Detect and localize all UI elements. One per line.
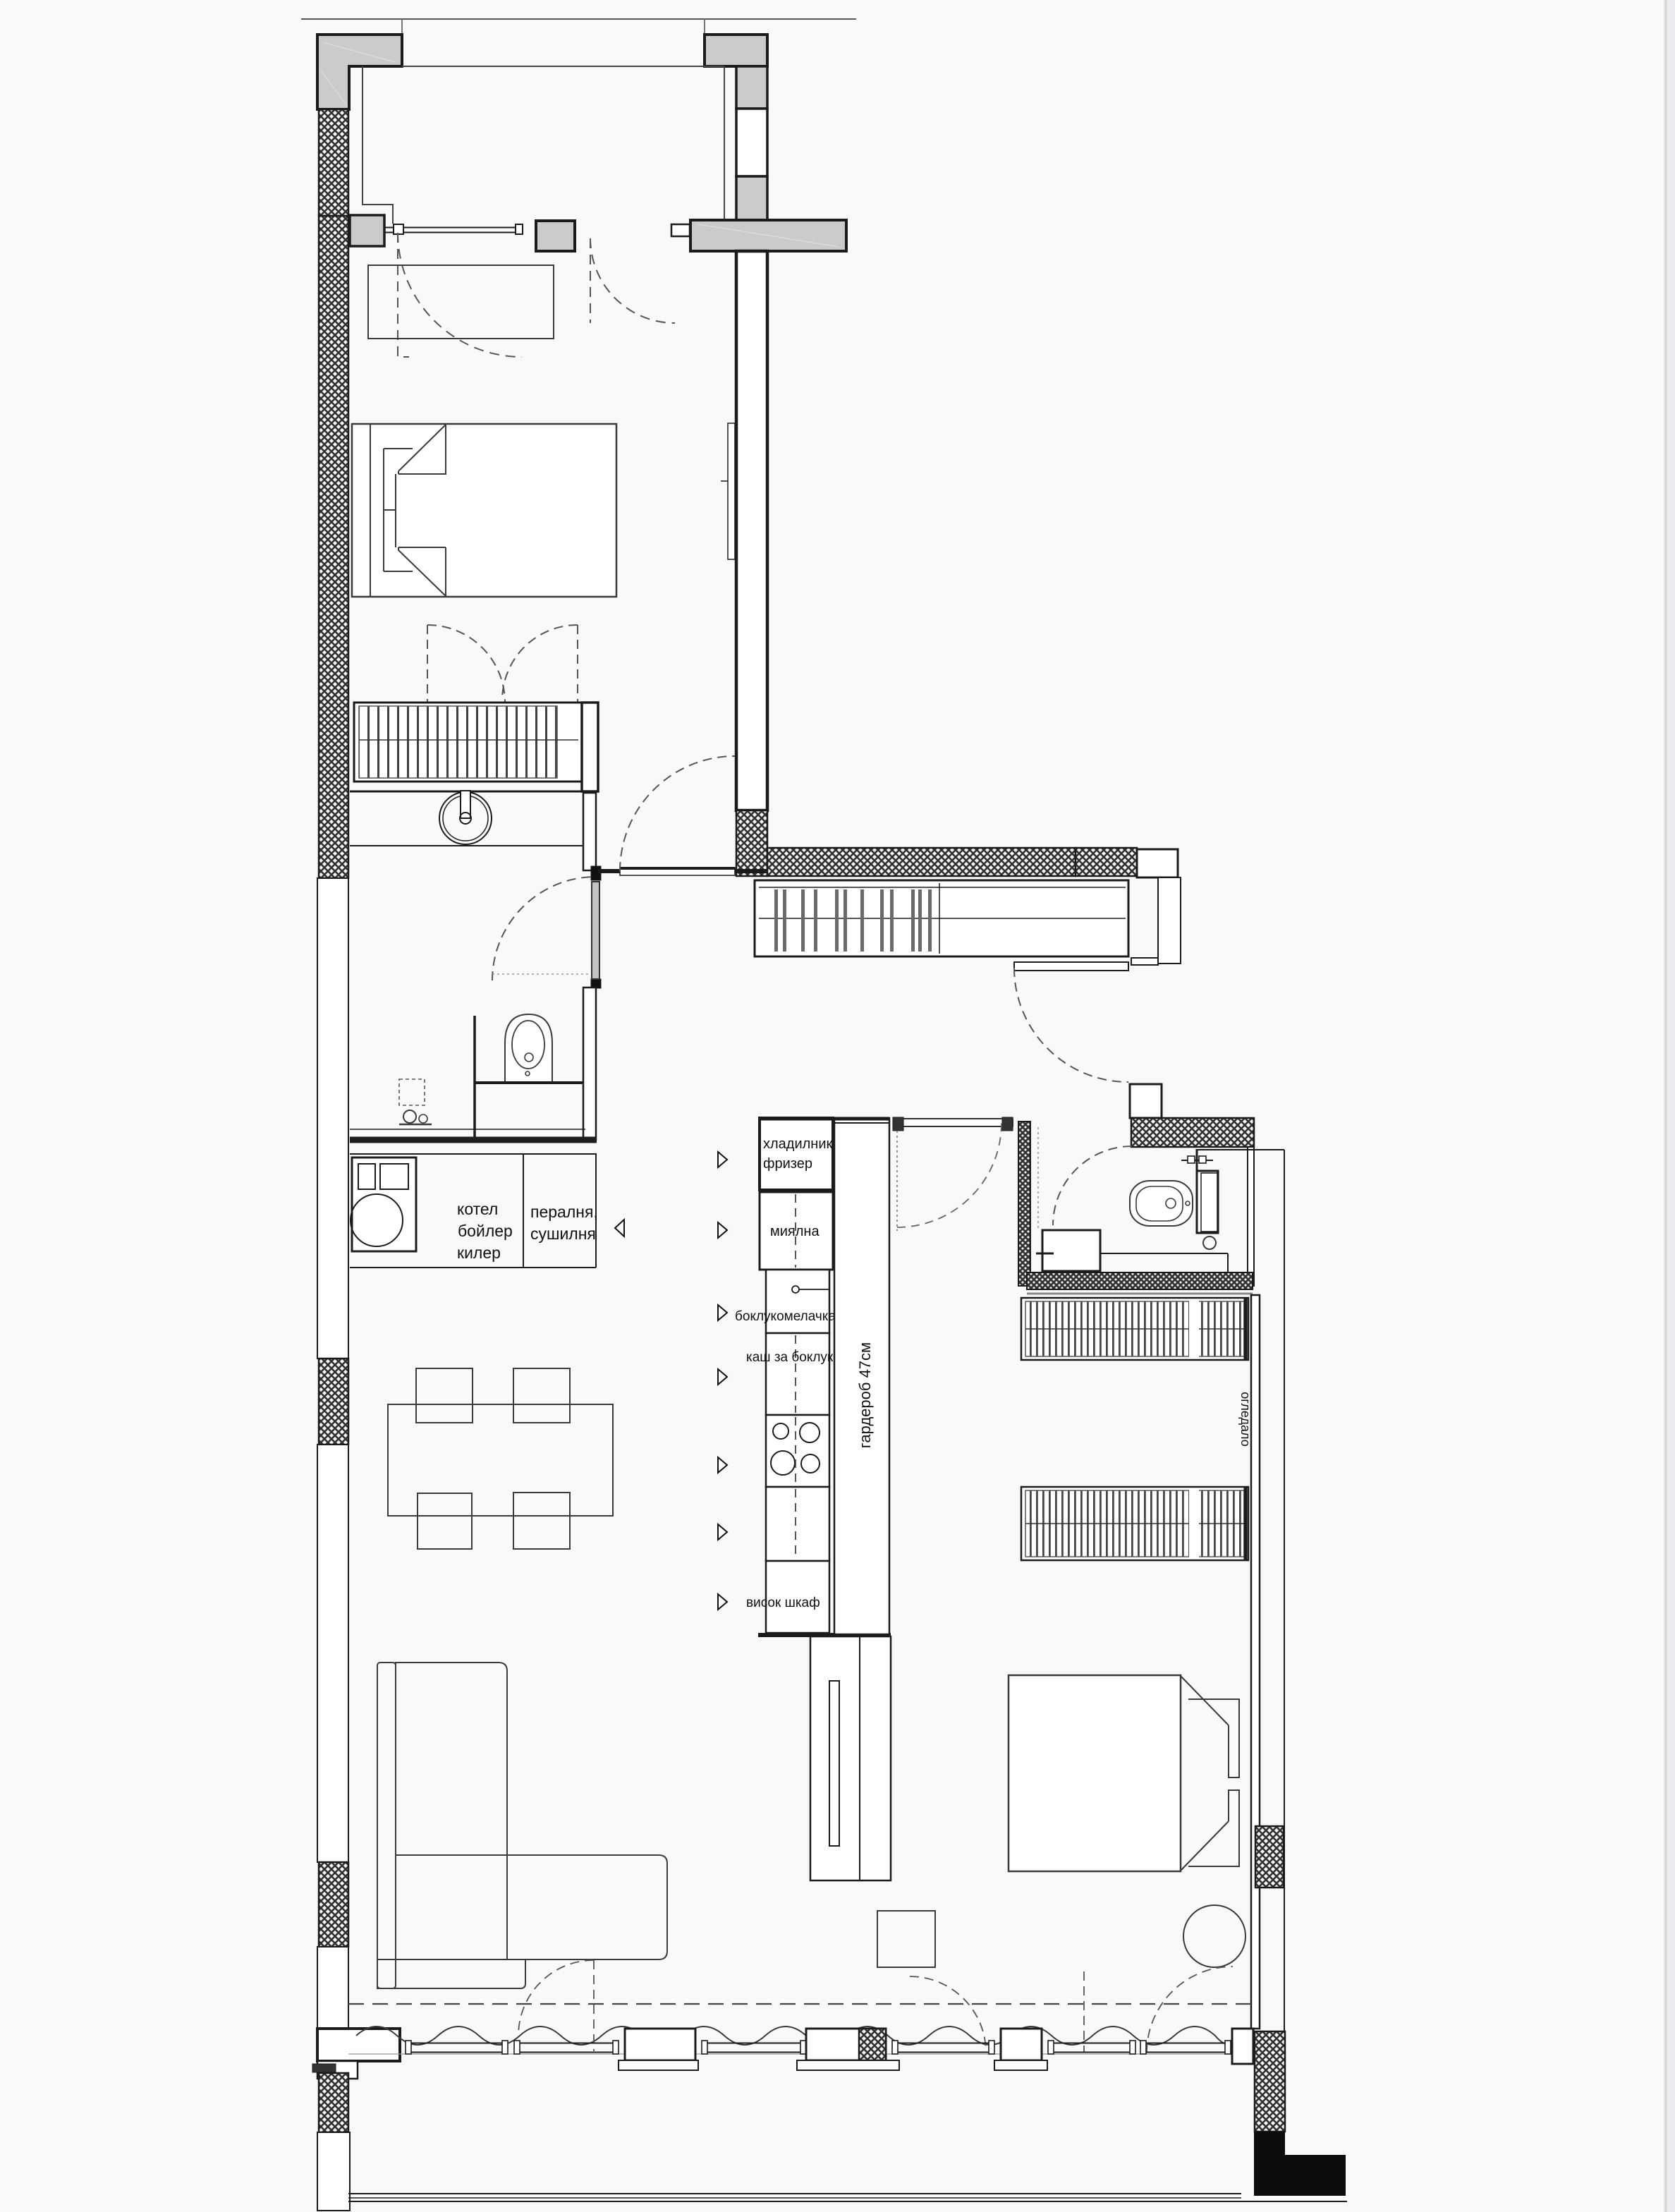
svg-text:каш за боклук: каш за боклук [746, 1350, 834, 1365]
svg-text:пералня,: пералня, [530, 1203, 598, 1221]
svg-text:котел: котел [457, 1200, 498, 1218]
svg-text:висок шкаф: висок шкаф [746, 1596, 820, 1610]
svg-text:боклукомелачка: боклукомелачка [735, 1309, 836, 1324]
svg-text:килер: килер [457, 1244, 501, 1262]
svg-text:хладилник: хладилник [763, 1136, 833, 1152]
svg-text:бойлер: бойлер [458, 1222, 513, 1240]
svg-text:фризер: фризер [763, 1156, 812, 1172]
svg-text:сушилня: сушилня [530, 1224, 596, 1243]
svg-text:гардероб 47см: гардероб 47см [856, 1342, 874, 1448]
